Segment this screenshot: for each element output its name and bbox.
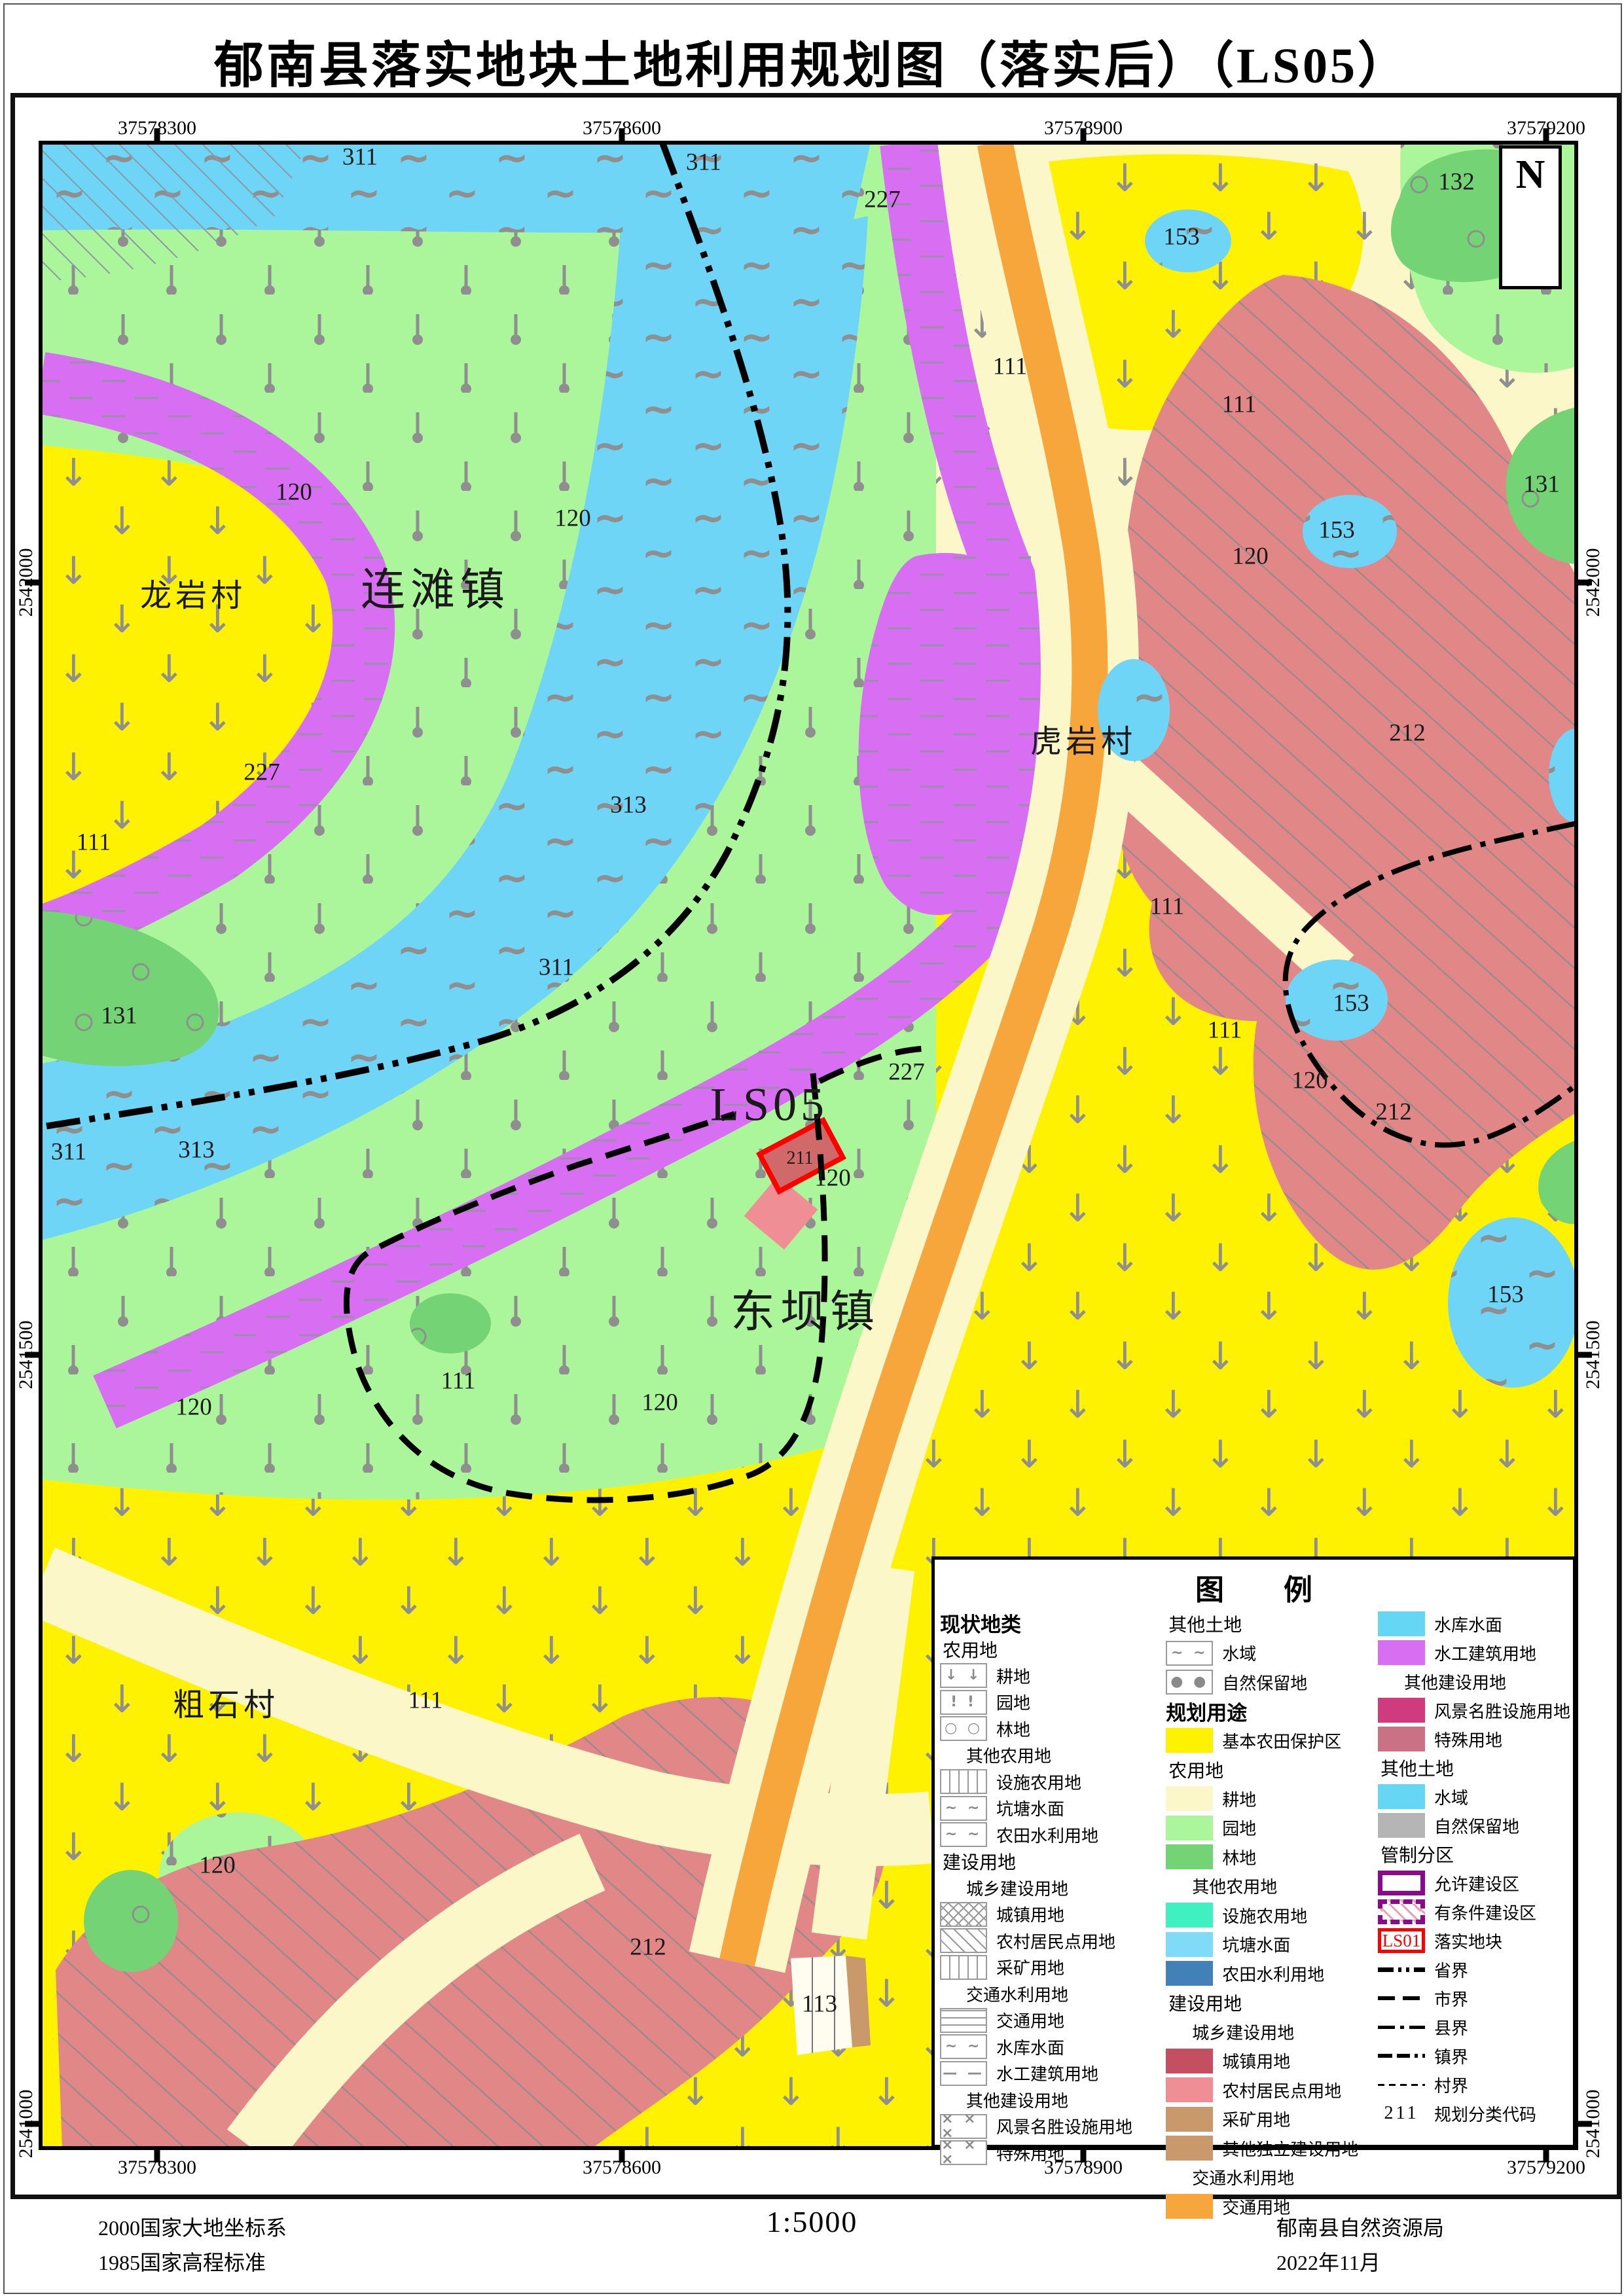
grid-label-left: 2541000 xyxy=(15,2090,37,2159)
map-label: 131 xyxy=(101,1002,137,1030)
legend-swatch-icon: × × × xyxy=(940,2114,987,2139)
legend-swatch-icon: ~ ~ xyxy=(940,1822,987,1847)
map-label: 311 xyxy=(686,149,721,177)
legend-row: 其他独立建设用地 xyxy=(1166,2134,1378,2163)
legend-row-label: 其他土地 xyxy=(1380,1755,1454,1781)
legend-swatch-icon xyxy=(1166,1844,1213,1869)
legend-swatch-icon xyxy=(1166,1932,1213,1957)
grid-label-top: 37578300 xyxy=(118,117,196,139)
grid-label-right: 2541500 xyxy=(1582,1321,1604,1390)
legend-row: 规划用途 xyxy=(1166,1697,1378,1727)
legend-swatch-icon xyxy=(1378,1784,1425,1809)
legend-row: 水工建筑用地 xyxy=(1378,1638,1568,1667)
legend-row: ↓ ↓ 耕地 xyxy=(940,1662,1166,1689)
legend-swatch-icon: ~ ~ xyxy=(940,1796,987,1821)
legend-swatch-icon: ↓ ↓ xyxy=(940,1663,987,1688)
legend-row: 农用地 xyxy=(940,1636,1166,1663)
legend-row: × × × 特殊用地 xyxy=(940,2140,1166,2166)
map-label: 131 xyxy=(1523,471,1560,499)
legend-row-label: 其他农用地 xyxy=(966,1743,1051,1767)
legend-row: ! ! 园地 xyxy=(940,1689,1166,1716)
legend-row-label: 其他土地 xyxy=(1168,1611,1242,1637)
legend-row-label: 城镇用地 xyxy=(1222,2049,1290,2073)
map-label: 111 xyxy=(77,829,111,857)
legend-swatch-icon xyxy=(940,2008,987,2033)
legend-row: 其他建设用地 xyxy=(1378,1667,1568,1696)
legend-row-label: 农用地 xyxy=(943,1636,998,1662)
legend-swatch-icon xyxy=(1166,2049,1213,2073)
map-label: 111 xyxy=(993,353,1028,381)
legend-row: ○ ○ 林地 xyxy=(940,1715,1166,1742)
grid-label-top: 37579200 xyxy=(1507,117,1585,139)
grid-label-top: 37578600 xyxy=(583,117,661,139)
legend-row: 其他建设用地 xyxy=(940,2087,1166,2113)
map-label: 313 xyxy=(610,791,647,819)
legend-row-label: 交通水利用地 xyxy=(1192,2165,1294,2189)
legend-row: 交通水利用地 xyxy=(1166,2163,1378,2193)
legend-row: 省界 xyxy=(1378,1955,1568,1984)
legend-row: 镇界 xyxy=(1378,2041,1568,2070)
legend-row: 县界 xyxy=(1378,2013,1568,2041)
map-label: 120 xyxy=(276,478,312,507)
legend-row: 允许建设区 xyxy=(1378,1869,1568,1897)
legend-panel: 图 例 现状地类 农用地 ↓ ↓ 耕地 ! ! xyxy=(931,1556,1576,2148)
footer-agency-line1: 郁南县自然资源局 xyxy=(1276,2211,1444,2246)
map-label: 111 xyxy=(1222,391,1257,419)
legend-swatch-icon xyxy=(940,1902,987,1927)
legend-row-label: 其他农用地 xyxy=(1192,1874,1277,1898)
legend-swatch-icon xyxy=(1166,1961,1213,1986)
grid-label-left: 2541500 xyxy=(15,1321,37,1390)
legend-row-label: 自然保留地 xyxy=(1434,1814,1519,1838)
legend-swatch-icon xyxy=(940,1955,987,1980)
legend-row-label: 林地 xyxy=(1222,1845,1256,1869)
legend-row-label: 农村居民点用地 xyxy=(996,1929,1115,1953)
legend-row: — — 水工建筑用地 xyxy=(940,2060,1166,2087)
grid-label-left: 2542000 xyxy=(15,548,37,617)
legend-row: 其他农用地 xyxy=(940,1742,1166,1769)
legend-row-label: 特殊用地 xyxy=(996,2141,1064,2165)
legend-swatch-icon: — — xyxy=(940,2061,987,2086)
legend-row-label: 落实地块 xyxy=(1434,1929,1502,1953)
legend-row-label: 有条件建设区 xyxy=(1434,1900,1536,1924)
footer-datum-line2: 1985国家高程标准 xyxy=(98,2246,287,2280)
legend-swatch-icon xyxy=(1378,1698,1425,1723)
legend-row-label: 农用地 xyxy=(1168,1757,1223,1783)
legend-row: 基本农田保护区 xyxy=(1166,1726,1378,1755)
legend-row: 设施农用地 xyxy=(940,1768,1166,1795)
footer-agency: 郁南县自然资源局 2022年11月 xyxy=(1276,2211,1444,2280)
legend-row-label: 其他建设用地 xyxy=(1404,1670,1506,1694)
legend-row: 农村居民点用地 xyxy=(1166,2075,1378,2105)
legend-row-label: 设施农用地 xyxy=(996,1770,1081,1794)
map-label: 东坝镇 xyxy=(731,1276,880,1340)
legend-row-label: 农田水利用地 xyxy=(1222,1962,1324,1986)
map-label: 120 xyxy=(175,1393,212,1422)
legend-swatch-icon: LS01 xyxy=(1378,1928,1425,1953)
legend-swatch-icon: ● ● xyxy=(1166,1670,1213,1695)
legend-row-label: 风景名胜设施用地 xyxy=(1434,1698,1570,1723)
map-label: 虎岩村 xyxy=(1030,715,1136,761)
grid-label-right: 2542000 xyxy=(1582,548,1604,617)
legend-row-label: 其他建设用地 xyxy=(966,2088,1068,2112)
legend-row: ● ● 自然保留地 xyxy=(1166,1668,1378,1697)
map-label: 153 xyxy=(1333,990,1369,1018)
map-label: 120 xyxy=(1232,543,1269,571)
legend-row-label: 县界 xyxy=(1434,2015,1468,2039)
legend-row: 其他土地 xyxy=(1378,1753,1568,1782)
legend-row-label: 交通用地 xyxy=(996,2008,1064,2032)
legend-row: 城镇用地 xyxy=(940,1901,1166,1928)
grid-label-top: 37578900 xyxy=(1044,117,1123,139)
legend-row: 现状地类 xyxy=(940,1609,1166,1636)
legend-row: 风景名胜设施用地 xyxy=(1378,1696,1568,1725)
map-label: 313 xyxy=(178,1136,215,1164)
legend-row-label: 规划分类代码 xyxy=(1434,2102,1536,2126)
legend-row: ~ ~ 农田水利用地 xyxy=(940,1821,1166,1848)
map-label: 212 xyxy=(630,1933,666,1962)
legend-swatch-icon xyxy=(1166,1816,1213,1840)
legend-row: 设施农用地 xyxy=(1166,1901,1378,1930)
legend-row-label: 水工建筑用地 xyxy=(1434,1641,1536,1665)
legend-swatch-icon xyxy=(1378,1899,1425,1924)
legend-swatch-icon: ! ! xyxy=(940,1690,987,1715)
map-label: 132 xyxy=(1438,168,1475,196)
grid-label-bottom: 37578600 xyxy=(583,2157,661,2179)
legend-row-label: 现状地类 xyxy=(940,1608,1021,1638)
map-label: 227 xyxy=(244,759,280,787)
legend-swatch-icon xyxy=(940,1769,987,1794)
legend-row: LS01 落实地块 xyxy=(1378,1926,1568,1955)
legend-row-label: 水域 xyxy=(1434,1785,1468,1809)
map-label: 120 xyxy=(641,1389,678,1417)
map-label: 龙岩村 xyxy=(140,569,246,615)
legend-row-label: 林地 xyxy=(996,1717,1030,1741)
legend-row: 农用地 xyxy=(1166,1755,1378,1785)
legend-swatch-icon: ~ ~ xyxy=(940,2034,987,2059)
legend-swatch-icon: ○ ○ xyxy=(940,1716,987,1741)
legend-row-label: 城乡建设用地 xyxy=(1192,2020,1294,2044)
legend-swatch-icon xyxy=(1166,1728,1213,1753)
legend-row-label: 村界 xyxy=(1434,2073,1468,2097)
legend-row-label: 风景名胜设施用地 xyxy=(996,2114,1132,2138)
legend-row: 林地 xyxy=(1166,1842,1378,1872)
legend-swatch-icon: × × × xyxy=(940,2140,987,2165)
legend-row-label: 采矿用地 xyxy=(1222,2107,1290,2131)
map-label: 227 xyxy=(888,1058,925,1086)
legend-row: 建设用地 xyxy=(1166,1988,1378,2018)
legend-row-label: 市界 xyxy=(1434,1986,1468,2011)
legend-column-planned: 其他土地 ~ ~ 水域 ● ● 自然保留地 规划用途 xyxy=(1166,1609,1378,2221)
legend-swatch-icon xyxy=(1166,1903,1213,1928)
map-label: 311 xyxy=(342,143,378,171)
legend-title: 图 例 xyxy=(961,1566,1573,1608)
legend-row: 水库水面 xyxy=(1378,1609,1568,1638)
map-label: 120 xyxy=(199,1852,236,1880)
legend-row: 211 规划分类代码 xyxy=(1378,2099,1568,2128)
map-label: 111 xyxy=(1208,1016,1242,1045)
grid-label-right: 2541000 xyxy=(1582,2090,1604,2159)
legend-row: 城镇用地 xyxy=(1166,2047,1378,2076)
legend-row-label: 城镇用地 xyxy=(996,1902,1064,1926)
map-label: LS05 xyxy=(710,1078,828,1132)
map-label: 113 xyxy=(802,1990,837,2018)
legend-row: 有条件建设区 xyxy=(1378,1897,1568,1926)
legend-swatch-icon xyxy=(1378,2054,1425,2058)
legend-row: 耕地 xyxy=(1166,1784,1378,1814)
legend-row-label: 水库水面 xyxy=(996,2035,1064,2059)
legend-row-label: 农田水利用地 xyxy=(996,1823,1098,1847)
legend-row: ~ ~ 水库水面 xyxy=(940,2034,1166,2060)
legend-row: 城乡建设用地 xyxy=(940,1874,1166,1901)
legend-row-label: 采矿用地 xyxy=(996,1955,1064,1979)
legend-row-label: 建设用地 xyxy=(1168,1990,1242,2016)
legend-row-label: 允许建设区 xyxy=(1434,1871,1519,1895)
grid-label-bottom: 37578300 xyxy=(118,2157,196,2179)
legend-row: 村界 xyxy=(1378,2070,1568,2099)
map-label: 311 xyxy=(539,954,574,982)
map-label: 153 xyxy=(1318,516,1355,545)
legend-row-label: 自然保留地 xyxy=(1222,1670,1307,1695)
legend-row-label: 园地 xyxy=(1222,1816,1256,1840)
legend-swatch-icon xyxy=(1166,2136,1213,2161)
legend-row: 交通水利用地 xyxy=(940,1981,1166,2007)
legend-row: ~ ~ 坑塘水面 xyxy=(940,1795,1166,1822)
legend-swatch-icon xyxy=(1378,1871,1425,1895)
legend-row-label: 耕地 xyxy=(1222,1787,1256,1811)
legend-row: 市界 xyxy=(1378,1984,1568,2013)
map-label: 120 xyxy=(1291,1067,1328,1095)
legend-row: 农村居民点用地 xyxy=(940,1928,1166,1954)
legend-row: 园地 xyxy=(1166,1814,1378,1843)
legend-swatch-icon xyxy=(1378,1611,1425,1636)
page: { "title": "郁南县落实地块土地利用规划图（落实后）（LS05）", … xyxy=(0,0,1624,2296)
legend-swatch-icon xyxy=(940,1928,987,1953)
legend-row-label: 水域 xyxy=(1222,1641,1256,1665)
map-label: 153 xyxy=(1163,223,1200,251)
legend-swatch-icon xyxy=(1166,2107,1213,2132)
legend-row-label: 其他独立建设用地 xyxy=(1222,2136,1358,2161)
legend-row-label: 坑塘水面 xyxy=(996,1796,1064,1820)
legend-row: 其他农用地 xyxy=(1166,1872,1378,1901)
legend-row: 城乡建设用地 xyxy=(1166,2017,1378,2047)
map-label: 120 xyxy=(814,1164,851,1193)
legend-column-current: 现状地类 农用地 ↓ ↓ 耕地 ! ! 园地 ○ ○ xyxy=(940,1609,1166,2221)
legend-column-zones: 水库水面 水工建筑用地 其他建设用地 风景名胜设施用地 xyxy=(1378,1609,1568,2221)
legend-row-label: 园地 xyxy=(996,1690,1030,1714)
legend-row-label: 基本农田保护区 xyxy=(1222,1729,1341,1753)
map-label: 227 xyxy=(864,186,901,214)
legend-row: 自然保留地 xyxy=(1378,1811,1568,1840)
map-label: 153 xyxy=(1487,1281,1524,1309)
map-label: 连滩镇 xyxy=(361,554,510,619)
legend-row: ~ ~ 水域 xyxy=(1166,1639,1378,1668)
legend-swatch-icon: ~ ~ xyxy=(1166,1641,1213,1666)
legend-swatch-icon xyxy=(1378,1640,1425,1665)
legend-row-label: 镇界 xyxy=(1434,2044,1468,2068)
legend-swatch-icon xyxy=(1378,1967,1425,1972)
legend-swatch-icon: 211 xyxy=(1378,2101,1425,2126)
legend-swatch-icon xyxy=(1378,1996,1425,2000)
legend-row: × × × 风景名胜设施用地 xyxy=(940,2113,1166,2140)
map-label: 120 xyxy=(554,505,591,533)
legend-row-label: 管制分区 xyxy=(1380,1841,1454,1867)
map-label: 311 xyxy=(51,1138,86,1166)
legend-row: 水域 xyxy=(1378,1782,1568,1811)
north-label: N xyxy=(1499,152,1562,198)
legend-row: 管制分区 xyxy=(1378,1840,1568,1869)
footer-agency-line2: 2022年11月 xyxy=(1276,2246,1444,2280)
legend-row-label: 农村居民点用地 xyxy=(1222,2078,1341,2102)
legend-row-label: 坑塘水面 xyxy=(1222,1932,1290,1956)
legend-row-label: 建设用地 xyxy=(943,1848,1016,1874)
map-label: 111 xyxy=(408,1687,443,1715)
legend-row-label: 交通水利用地 xyxy=(966,1982,1068,2006)
map-label: 212 xyxy=(1375,1098,1412,1126)
legend-swatch-icon xyxy=(1378,2026,1425,2029)
map-label: 211 xyxy=(787,1148,814,1169)
map-label: 粗石村 xyxy=(173,1679,279,1725)
legend-row: 农田水利用地 xyxy=(1166,1959,1378,1988)
legend-row-label: 省界 xyxy=(1434,1958,1468,1982)
legend-row: 交通用地 xyxy=(940,2007,1166,2034)
legend-swatch-icon xyxy=(1378,2084,1425,2086)
legend-row: 坑塘水面 xyxy=(1166,1930,1378,1960)
legend-swatch-icon xyxy=(1166,2077,1213,2102)
legend-row-label: 耕地 xyxy=(996,1664,1030,1688)
legend-row-label: 规划用途 xyxy=(1166,1696,1247,1726)
legend-swatch-icon xyxy=(1378,1813,1425,1838)
legend-row: 特殊用地 xyxy=(1378,1725,1568,1753)
legend-row-label: 水库水面 xyxy=(1434,1612,1502,1636)
legend-row: 采矿用地 xyxy=(1166,2105,1378,2134)
legend-row: 采矿用地 xyxy=(940,1954,1166,1981)
map-label: 111 xyxy=(1150,893,1185,921)
legend-swatch-icon xyxy=(1166,1786,1213,1811)
legend-row-label: 设施农用地 xyxy=(1222,1903,1307,1928)
legend-row-label: 城乡建设用地 xyxy=(966,1876,1068,1900)
map-label: 212 xyxy=(1389,719,1426,747)
legend-row: 其他土地 xyxy=(1166,1609,1378,1639)
legend-row-label: 特殊用地 xyxy=(1434,1727,1502,1751)
legend-row-label: 水工建筑用地 xyxy=(996,2061,1098,2085)
legend-row: 建设用地 xyxy=(940,1848,1166,1875)
legend-swatch-icon xyxy=(1378,1727,1425,1751)
map-label: 111 xyxy=(441,1367,476,1395)
